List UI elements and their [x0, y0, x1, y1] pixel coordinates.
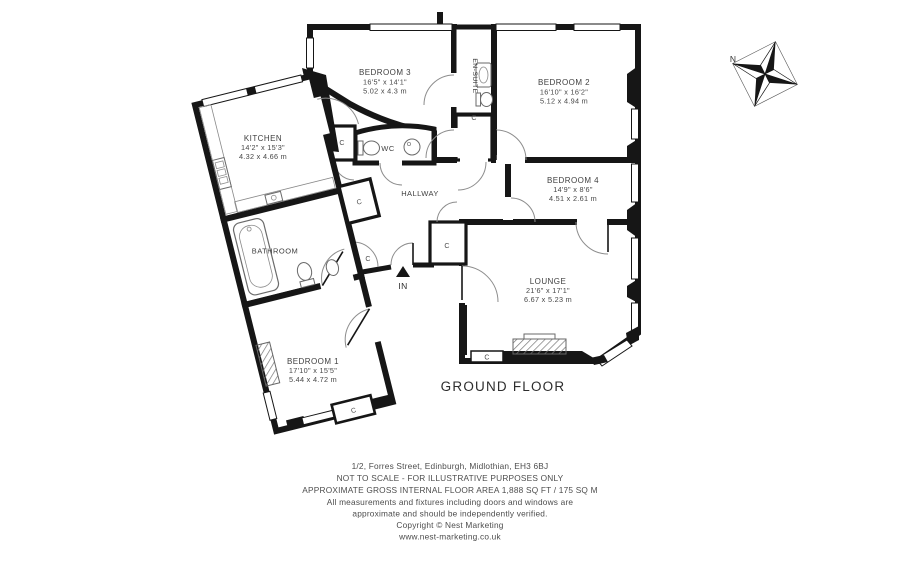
window: [632, 164, 639, 202]
lounge-name: LOUNGE: [530, 277, 567, 286]
window: [307, 38, 314, 68]
closet-label: C: [471, 115, 476, 122]
hallway-name: HALLWAY: [401, 189, 439, 198]
window: [632, 238, 639, 279]
lounge-left-wall: [459, 305, 467, 355]
floorplan-canvas: C C BEDROOM 3 16'5" x 14'1" 5.02 x 4.3 m…: [0, 0, 900, 563]
ensuite-closet-door-arc: [458, 162, 486, 190]
floor-title: GROUND FLOOR: [441, 379, 566, 394]
closet-label: C: [339, 140, 344, 147]
footer-area: APPROXIMATE GROSS INTERNAL FLOOR AREA 1,…: [302, 485, 597, 495]
kitchen-metric: 4.32 x 4.66 m: [239, 152, 287, 161]
compass-north-label: N: [730, 54, 736, 64]
wc-name: WC: [381, 144, 395, 153]
bedroom1-imperial: 17'10" x 15'5": [289, 366, 337, 375]
window: [370, 24, 452, 31]
footer-address: 1/2, Forres Street, Edinburgh, Midlothia…: [352, 461, 549, 471]
window: [632, 109, 639, 139]
bedroom4-metric: 4.51 x 2.61 m: [549, 194, 597, 203]
kitchen-imperial: 14'2" x 15'3": [241, 143, 285, 152]
hall-closet-door-arc: [437, 202, 457, 222]
window: [574, 24, 620, 31]
bedroom3-metric: 5.02 x 4.3 m: [363, 87, 407, 96]
bedroom4-name: BEDROOM 4: [547, 176, 599, 185]
window: [632, 303, 639, 330]
entrance-label: IN: [398, 281, 408, 291]
compass-rose-icon: N: [722, 31, 808, 117]
bedroom3-name: BEDROOM 3: [359, 68, 411, 77]
footer-website: www.nest-marketing.co.uk: [398, 532, 501, 542]
bedroom1-name: BEDROOM 1: [287, 357, 339, 366]
lounge-fireplace: [513, 339, 566, 354]
closet-label: C: [484, 355, 489, 362]
floorplan-page: C C BEDROOM 3 16'5" x 14'1" 5.02 x 4.3 m…: [0, 0, 900, 563]
lounge-fireplace-mantel: [524, 334, 555, 339]
footer: 1/2, Forres Street, Edinburgh, Midlothia…: [302, 461, 597, 542]
entry-door-arc: [391, 243, 413, 265]
bedroom3-imperial: 16'5" x 14'1": [363, 78, 407, 87]
entrance-arrow-icon: [396, 266, 410, 277]
footer-disclaimer-1: NOT TO SCALE - FOR ILLUSTRATIVE PURPOSES…: [337, 473, 564, 483]
bedroom2-name: BEDROOM 2: [538, 78, 590, 87]
sink: [404, 139, 420, 155]
kitchen-name: KITCHEN: [244, 134, 282, 143]
bedroom2-imperial: 16'10" x 16'2": [540, 88, 588, 97]
bedroom4-imperial: 14'9" x 8'6": [553, 185, 593, 194]
ensuite-name: EN-SUITE: [471, 58, 478, 93]
window: [496, 24, 556, 31]
lounge-imperial: 21'6" x 17'1": [526, 286, 570, 295]
closet-label: C: [444, 243, 449, 250]
toilet-bowl: [364, 141, 380, 155]
footer-copyright: Copyright © Nest Marketing: [396, 520, 503, 530]
footer-disclaimer-2: All measurements and fixtures including …: [327, 497, 574, 507]
toilet-bowl: [481, 93, 493, 107]
closet-label: C: [365, 256, 370, 263]
toilet-tank: [358, 141, 363, 155]
footer-disclaimer-3: approximate and should be independently …: [352, 509, 547, 519]
bathroom-name: BATHROOM: [252, 247, 298, 256]
lounge-metric: 6.67 x 5.23 m: [524, 295, 572, 304]
toilet-tank: [476, 93, 481, 106]
bedroom1-metric: 5.44 x 4.72 m: [289, 375, 337, 384]
bedroom2-metric: 5.12 x 4.94 m: [540, 97, 588, 106]
